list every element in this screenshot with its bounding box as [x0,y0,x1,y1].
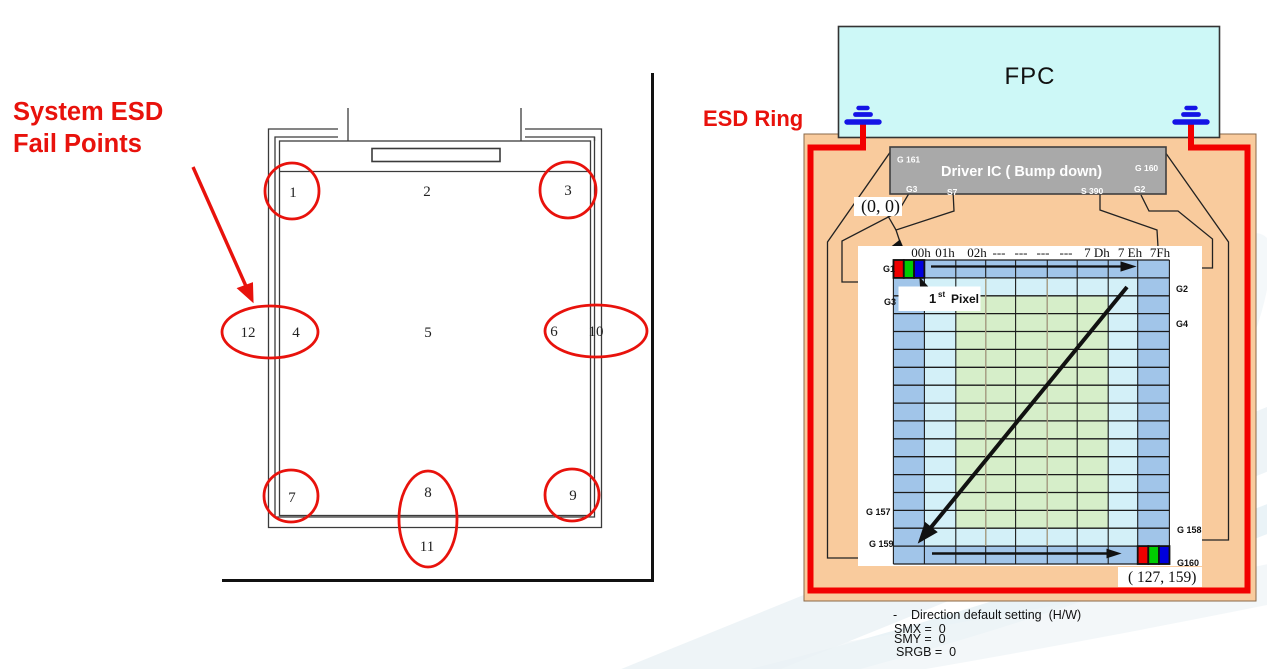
svg-text:FPC: FPC [1005,63,1056,90]
svg-text:st: st [938,290,945,299]
svg-text:SRGB = 0: SRGB = 0 [896,645,956,659]
svg-text:-: - [893,608,897,622]
svg-text:G 158: G 158 [1177,525,1202,535]
svg-text:4: 4 [292,325,300,341]
svg-text:10: 10 [589,324,604,340]
svg-text:G160: G160 [1177,558,1199,568]
svg-text:---: --- [1060,245,1073,260]
svg-text:ESD Ring: ESD Ring [703,106,803,131]
svg-text:G 157: G 157 [866,507,891,517]
svg-text:G4: G4 [1176,319,1188,329]
svg-text:2: 2 [423,184,431,200]
svg-text:---: --- [1015,245,1028,260]
svg-text:G 161: G 161 [897,155,920,165]
svg-text:7Fh: 7Fh [1150,245,1171,260]
svg-text:3: 3 [564,183,572,199]
svg-text:1: 1 [929,291,936,306]
svg-text:12: 12 [241,325,256,341]
svg-text:8: 8 [424,485,432,501]
svg-text:Pixel: Pixel [951,292,979,306]
svg-text:Driver IC ( Bump down): Driver IC ( Bump down) [941,164,1102,180]
svg-text:02h: 02h [967,245,987,260]
svg-text:System ESD: System ESD [13,98,163,126]
svg-text:G 159: G 159 [869,539,894,549]
svg-text:(0, 0): (0, 0) [861,196,900,217]
svg-text:G2: G2 [1134,184,1146,194]
svg-text:11: 11 [420,539,434,555]
svg-text:Fail Points: Fail Points [13,130,142,158]
svg-text:G3: G3 [906,184,918,194]
svg-text:S7: S7 [947,187,958,197]
svg-text:G3: G3 [884,297,896,307]
svg-text:---: --- [993,245,1006,260]
svg-text:6: 6 [550,324,558,340]
svg-text:7: 7 [288,490,296,506]
svg-text:Direction default setting (H/: Direction default setting (H/W) [911,608,1081,622]
svg-text:G2: G2 [1176,284,1188,294]
svg-text:( 127, 159): ( 127, 159) [1128,569,1196,586]
svg-text:G1: G1 [883,264,895,274]
svg-text:1: 1 [289,185,297,201]
svg-text:00h: 00h [911,245,931,260]
svg-text:---: --- [1037,245,1050,260]
svg-text:SMY = 0: SMY = 0 [894,632,946,646]
svg-text:01h: 01h [935,245,955,260]
svg-text:7 Dh: 7 Dh [1084,245,1110,260]
svg-text:5: 5 [424,325,432,341]
svg-text:7 Eh: 7 Eh [1118,245,1143,260]
svg-text:9: 9 [569,488,577,504]
svg-text:S 390: S 390 [1081,186,1103,196]
svg-text:G 160: G 160 [1135,163,1158,173]
